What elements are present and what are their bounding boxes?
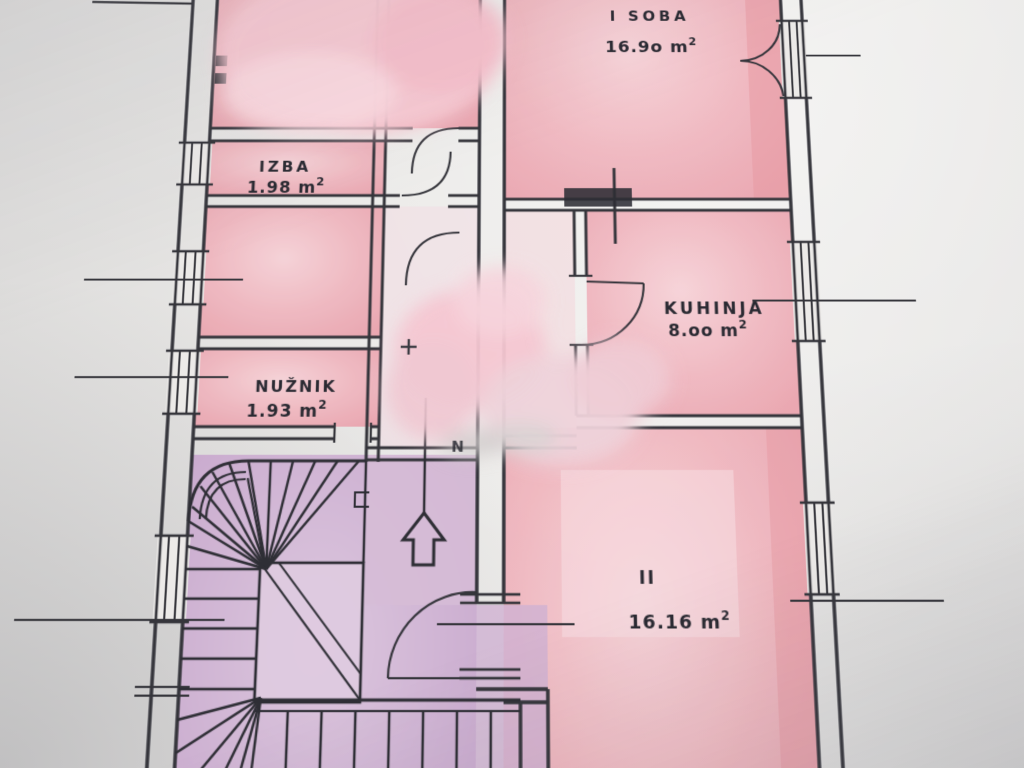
plan-perspective-wrap: I SOBA 16.9o m2 IZBA 1.98 m2 KUHINJA 8.o… (0, 0, 1024, 768)
room-area-room2: 16.16 m2 (628, 608, 731, 634)
room-area-izba: 1.98 m2 (247, 175, 326, 197)
room-label-kuhinja: KUHINJA (664, 299, 765, 318)
stair-landing-fill (364, 455, 477, 605)
floor-plan-drawing: I SOBA 16.9o m2 IZBA 1.98 m2 KUHINJA 8.o… (0, 0, 1024, 768)
room-area-kuhinja: 8.oo m2 (668, 317, 749, 340)
room-area-nuznik: 1.93 m2 (246, 397, 328, 421)
door-arc-icon (402, 152, 451, 196)
room-label-nuznik: NUŽNIK (255, 376, 337, 396)
watermark-letter: N (451, 439, 464, 456)
photographed-floor-plan: I SOBA 16.9o m2 IZBA 1.98 m2 KUHINJA 8.o… (0, 0, 1024, 768)
duct-box (564, 188, 632, 206)
room-label-soba1: I SOBA (609, 8, 689, 24)
room-b-fill (199, 207, 385, 338)
room-label-izba: IZBA (259, 158, 312, 175)
room-label-room2: II (639, 567, 657, 588)
room-area-soba1: 16.9o m2 (605, 35, 698, 57)
stair-band-ext-fill (475, 605, 549, 768)
door-arc-icon (412, 128, 459, 173)
